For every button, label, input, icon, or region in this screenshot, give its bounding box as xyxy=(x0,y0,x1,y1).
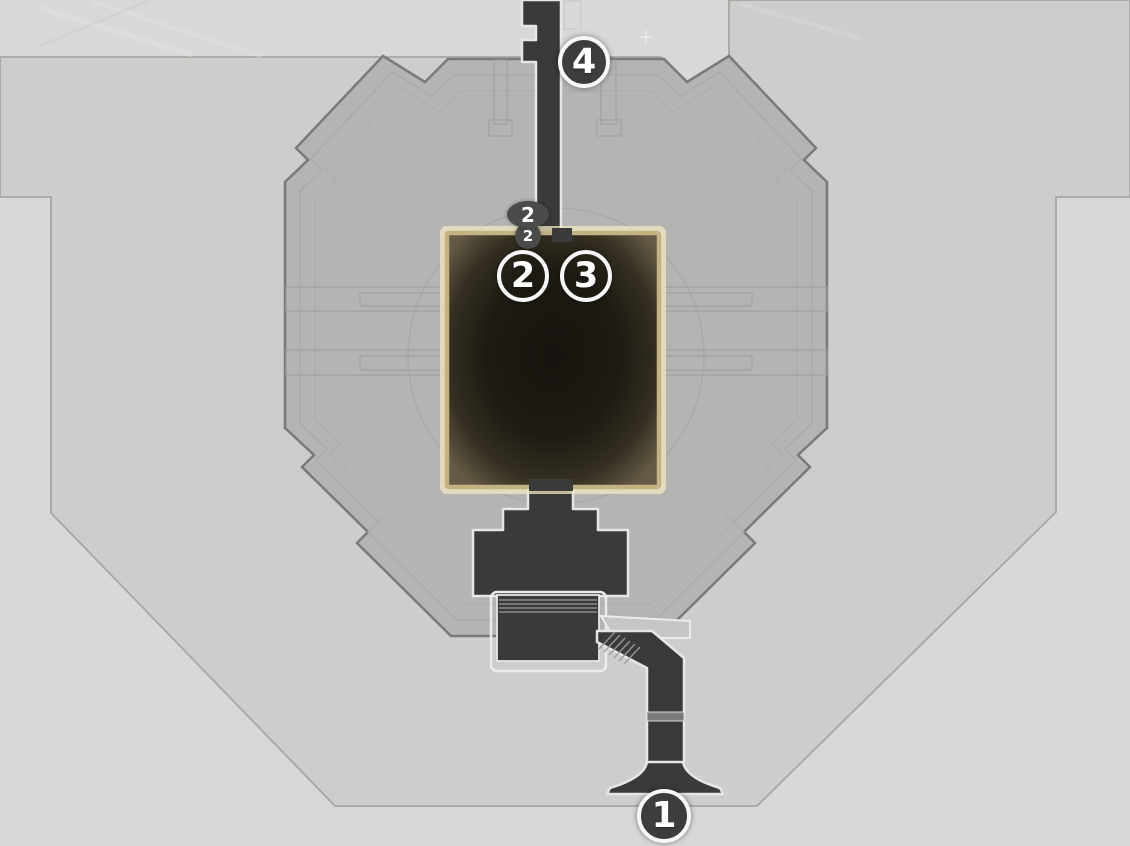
central-room-north-door xyxy=(552,228,572,242)
game-map-viewport: 2 2 1 2 3 4 xyxy=(0,0,1130,846)
stair-room xyxy=(497,595,599,661)
central-room xyxy=(443,228,663,491)
map-marker-4[interactable]: 4 xyxy=(558,36,610,88)
map-canvas xyxy=(0,0,1130,846)
corridor-door-line xyxy=(647,712,684,721)
map-marker-2[interactable]: 2 xyxy=(497,250,549,302)
central-room-south-door xyxy=(529,479,573,491)
map-marker-1[interactable]: 1 xyxy=(637,789,691,843)
central-room-floor xyxy=(447,233,659,487)
floor-level-badge-upper: 2 xyxy=(507,201,549,228)
map-marker-3[interactable]: 3 xyxy=(560,250,612,302)
corridor-north-side-wall xyxy=(564,1,581,29)
